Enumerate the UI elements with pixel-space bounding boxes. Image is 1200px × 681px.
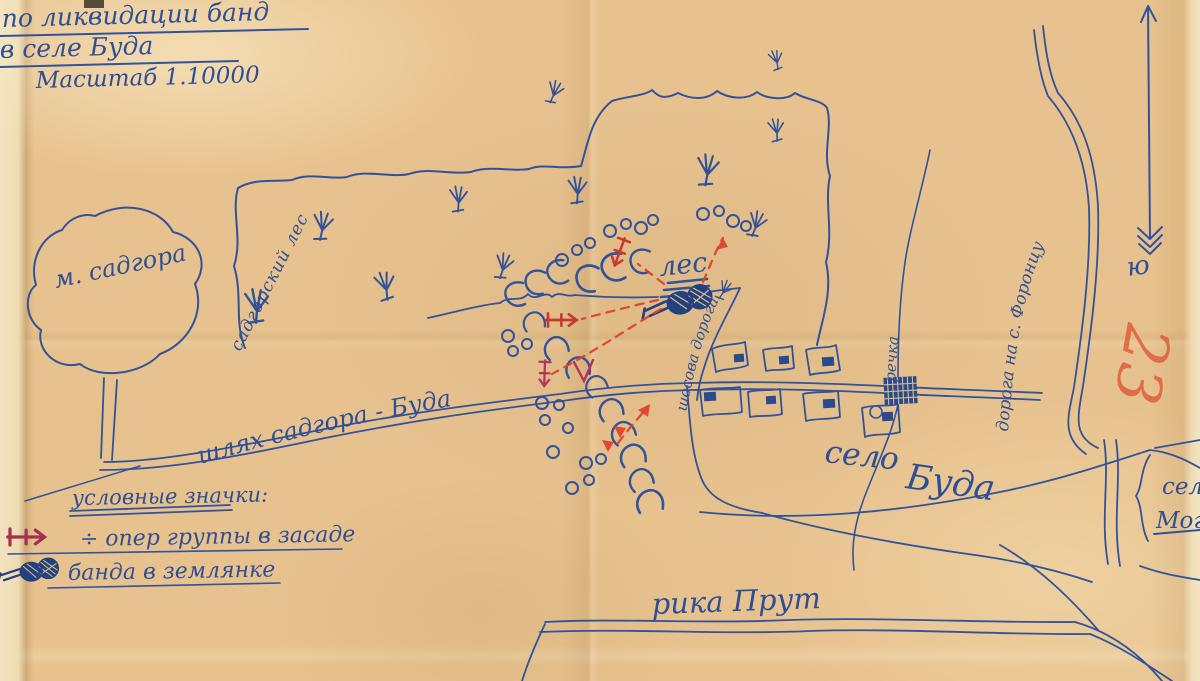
forest-label: лес xyxy=(657,247,708,283)
bush-circles xyxy=(502,206,751,494)
village-label-1: село xyxy=(823,434,900,478)
tree-icon xyxy=(568,177,586,204)
tree-icon xyxy=(374,270,398,301)
right-road xyxy=(1034,26,1098,454)
ambush-symbol xyxy=(609,236,631,267)
red-number: 23 xyxy=(1100,318,1186,409)
tree-icon xyxy=(696,154,720,187)
forest-outline xyxy=(234,90,830,348)
svg-text:шлях садгора - Буда: шлях садгора - Буда xyxy=(194,384,453,470)
tree-icon xyxy=(543,79,565,105)
map-page: по ликвидации банд в селе Буда Масштаб 1… xyxy=(0,0,1200,681)
map-canvas: по ликвидации банд в селе Буда Масштаб 1… xyxy=(0,0,1200,681)
tree-icon xyxy=(492,252,515,281)
tree-icon xyxy=(744,210,768,239)
map-title-line3: Масштаб 1.10000 xyxy=(34,62,260,94)
south-label: ю xyxy=(1125,250,1152,283)
village-label-2: Буда xyxy=(903,457,998,509)
main-road-label: шлях садгора - Буда xyxy=(194,384,453,470)
north-arrow xyxy=(1138,6,1162,254)
legend-symbol-ambush xyxy=(8,529,45,545)
tree-icon xyxy=(450,186,467,211)
house xyxy=(700,387,742,416)
river-lines xyxy=(522,545,1172,681)
forest-area-label: садгорский лес xyxy=(227,210,314,354)
right-road-label: дорога на с. Форонцу xyxy=(993,239,1049,433)
ambush-symbol xyxy=(546,313,576,326)
legend-symbol-dugout xyxy=(0,558,58,582)
edge-label-top: сел xyxy=(1162,474,1200,500)
town-label: м. садгора xyxy=(51,239,188,294)
legend-item-1: ÷ опер группы в засаде xyxy=(80,522,356,552)
legend-item-2: банда в землянке xyxy=(68,557,276,586)
house xyxy=(748,389,782,417)
title-block: по ликвидации банд в селе Буда Масштаб 1… xyxy=(0,0,308,94)
legend: условные значки: ÷ опер группы в засаде … xyxy=(0,483,356,588)
brace xyxy=(1136,455,1150,541)
tree-icon xyxy=(768,118,785,142)
svg-text:дорога на с. Форонцу: дорога на с. Форонцу xyxy=(993,239,1049,433)
house xyxy=(763,346,794,371)
map-title-line1: по ликвидации банд xyxy=(1,0,269,33)
stream-label: речка xyxy=(881,335,902,382)
river-label: рика Прут xyxy=(651,581,821,621)
tree-icon xyxy=(768,49,785,71)
legend-title: условные значки: xyxy=(71,483,269,510)
ambush-symbol xyxy=(539,360,551,386)
tree-icon xyxy=(311,211,334,241)
map-title-line2: в селе Буда xyxy=(0,31,154,64)
